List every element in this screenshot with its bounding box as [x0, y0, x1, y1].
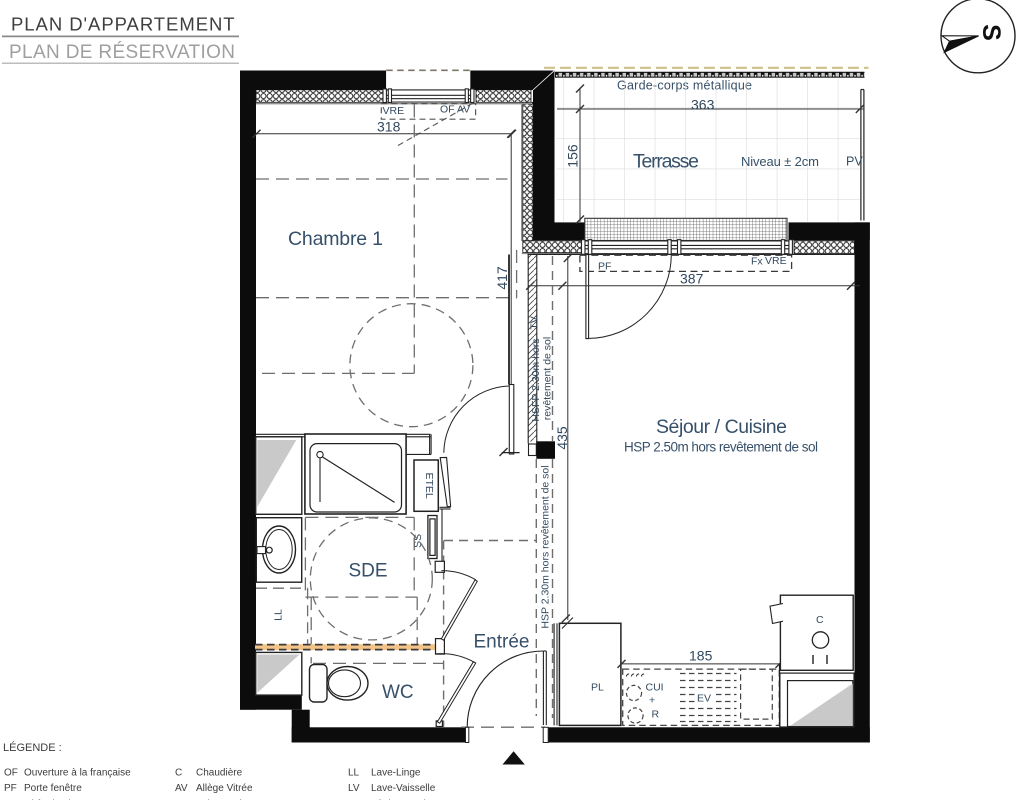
svg-text:LV: LV — [348, 783, 360, 794]
svg-text:Porte fenêtre: Porte fenêtre — [24, 783, 82, 794]
svg-text:Chambre 1: Chambre 1 — [288, 228, 383, 250]
svg-text:HSP 2.50m hors revêtement de s: HSP 2.50m hors revêtement de sol — [624, 440, 818, 455]
svg-text:VRE: VRE — [383, 105, 405, 117]
svg-text:OF: OF — [4, 768, 18, 779]
svg-text:HSFP 2.30m hors: HSFP 2.30m hors — [530, 338, 542, 421]
svg-text:156: 156 — [565, 144, 581, 168]
svg-text:revêtement de sol: revêtement de sol — [542, 337, 554, 420]
svg-text:HSP 2.30m hors revêtement de s: HSP 2.30m hors revêtement de sol — [540, 465, 552, 628]
svg-text:Allège Vitrée: Allège Vitrée — [196, 783, 253, 794]
svg-text:LL: LL — [348, 768, 360, 779]
svg-text:LL: LL — [273, 609, 285, 621]
svg-text:PLAN DE RÉSERVATION: PLAN DE RÉSERVATION — [9, 42, 235, 63]
svg-text:Séjour / Cuisine: Séjour / Cuisine — [656, 416, 787, 438]
svg-text:Fx: Fx — [751, 256, 763, 268]
svg-text:Lave-Vaisselle: Lave-Vaisselle — [371, 783, 436, 794]
svg-text:435: 435 — [554, 426, 570, 450]
svg-text:363: 363 — [691, 97, 715, 113]
svg-text:Terrasse: Terrasse — [633, 151, 699, 173]
svg-text:SDE: SDE — [349, 561, 388, 582]
svg-text:PF: PF — [4, 783, 17, 794]
svg-text:318: 318 — [377, 119, 401, 135]
svg-text:Entrée: Entrée — [474, 631, 530, 652]
svg-text:Chaudière: Chaudière — [196, 768, 243, 779]
svg-text:C: C — [175, 768, 182, 779]
svg-text:TV: TV — [529, 316, 541, 329]
svg-text:LÉGENDE :: LÉGENDE : — [3, 741, 62, 754]
svg-text:S: S — [977, 24, 1005, 41]
svg-text:Lave-Linge: Lave-Linge — [371, 768, 421, 779]
svg-text:185: 185 — [689, 648, 713, 664]
svg-text:PL: PL — [591, 682, 604, 694]
svg-text:WC: WC — [382, 682, 414, 703]
svg-text:Ouverture à la française: Ouverture à la française — [24, 768, 131, 779]
svg-text:EV: EV — [697, 693, 711, 705]
svg-text:Niveau ± 2cm: Niveau ± 2cm — [741, 154, 819, 169]
svg-text:ETEL: ETEL — [423, 472, 435, 498]
svg-text:R: R — [652, 709, 660, 721]
svg-text:C: C — [816, 614, 824, 626]
svg-text:AV: AV — [175, 783, 188, 794]
svg-text:+: + — [649, 695, 655, 707]
svg-text:417: 417 — [494, 266, 510, 290]
svg-text:CUI: CUI — [646, 682, 664, 694]
svg-text:PLAN D'APPARTEMENT: PLAN D'APPARTEMENT — [11, 14, 235, 35]
svg-text:PV: PV — [846, 155, 863, 169]
svg-text:VRE: VRE — [765, 255, 787, 267]
svg-text:PF: PF — [598, 261, 611, 273]
svg-text:387: 387 — [680, 271, 704, 287]
